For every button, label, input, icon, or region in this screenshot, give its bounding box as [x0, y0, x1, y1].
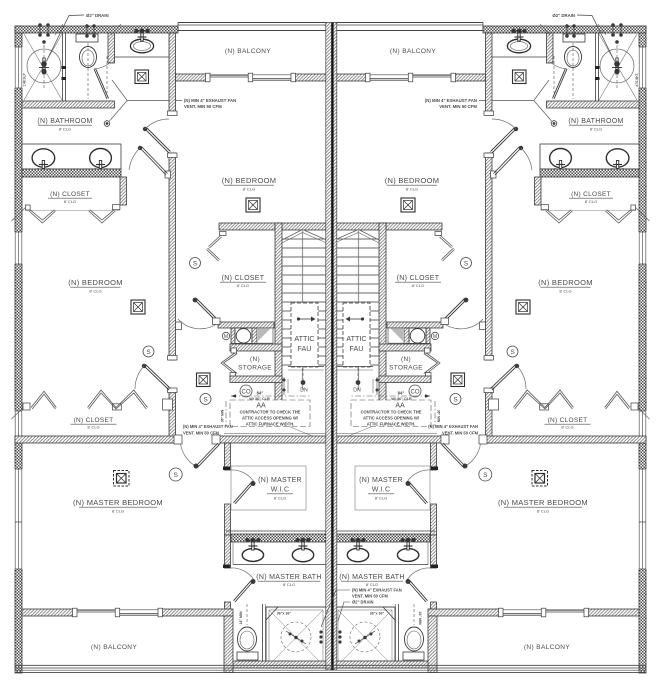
svg-text:36" MIN: 36" MIN [221, 409, 225, 422]
svg-text:(N) BEDROOM: (N) BEDROOM [385, 176, 440, 185]
svg-text:Ø2" DRAIN: Ø2" DRAIN [552, 13, 575, 18]
svg-text:(N): (N) [401, 356, 411, 363]
svg-text:(N) BEDROOM: (N) BEDROOM [222, 176, 277, 185]
svg-text:CO: CO [242, 390, 251, 396]
svg-text:8' CLG: 8' CLG [59, 127, 71, 132]
svg-text:Ø2" DRAIN: Ø2" DRAIN [86, 13, 109, 18]
svg-text:(N) MASTER: (N) MASTER [359, 477, 403, 484]
svg-text:8' CLG: 8' CLG [537, 509, 549, 514]
svg-text:8' CLG: 8' CLG [375, 496, 387, 501]
svg-text:VENT, MIN 50 CFM: VENT, MIN 50 CFM [352, 594, 389, 599]
svg-text:(N) BALCONY: (N) BALCONY [524, 644, 571, 651]
svg-text:(N) BALCONY: (N) BALCONY [390, 48, 437, 55]
svg-text:AA: AA [395, 403, 405, 410]
svg-text:(N) MIN 4" EXHAUST FAN: (N) MIN 4" EXHAUST FAN [352, 588, 402, 593]
svg-text:(N) MIN 4" EXHAUST FAN: (N) MIN 4" EXHAUST FAN [425, 98, 477, 103]
svg-text:Ø2" DRAIN: Ø2" DRAIN [352, 600, 374, 605]
svg-text:S: S [453, 396, 458, 403]
svg-text:DN: DN [300, 388, 308, 394]
svg-text:CONTRACTOR TO CHECK THE: CONTRACTOR TO CHECK THE [361, 410, 422, 415]
svg-text:FAU: FAU [350, 344, 364, 353]
svg-text:STORAGE: STORAGE [238, 365, 272, 372]
svg-text:8' CLG: 8' CLG [89, 289, 101, 294]
svg-text:ATTIC: ATTIC [294, 334, 314, 343]
svg-text:(N) MASTER: (N) MASTER [258, 477, 302, 484]
svg-text:(N) MIN 4" EXHAUST FAN: (N) MIN 4" EXHAUST FAN [183, 424, 233, 429]
svg-text:ATTIC: ATTIC [346, 334, 366, 343]
svg-text:36" MIN: 36" MIN [437, 410, 441, 423]
svg-text:AA: AA [256, 403, 266, 410]
svg-text:(N) CLOSET: (N) CLOSET [548, 417, 588, 424]
svg-text:(N) CLOSET: (N) CLOSET [222, 275, 265, 282]
svg-text:36"x 36": 36"x 36" [370, 612, 385, 616]
svg-text:8' CLG: 8' CLG [559, 289, 571, 294]
svg-text:S: S [193, 260, 198, 267]
svg-text:W.I.C: W.I.C [372, 487, 391, 494]
svg-text:8' CLG: 8' CLG [237, 283, 249, 288]
svg-text:S: S [146, 349, 151, 356]
svg-text:(N) BATHROOM: (N) BATHROOM [568, 118, 623, 125]
svg-text:(N) CLOSET: (N) CLOSET [397, 275, 440, 282]
svg-text:W.I.C: W.I.C [271, 487, 290, 494]
svg-text:S: S [483, 472, 488, 479]
svg-text:(N) MASTER BEDROOM: (N) MASTER BEDROOM [498, 498, 588, 507]
svg-text:84": 84" [398, 391, 405, 396]
svg-text:8' CLG: 8' CLG [366, 582, 378, 587]
svg-text:DN: DN [353, 388, 361, 394]
svg-text:FAU: FAU [298, 344, 312, 353]
svg-text:ATTIC ACCESS OPENING W/: ATTIC ACCESS OPENING W/ [242, 416, 299, 421]
svg-text:8' CLG: 8' CLG [406, 187, 418, 192]
svg-text:(N) CLOSET: (N) CLOSET [571, 191, 611, 198]
svg-text:8' CLG: 8' CLG [590, 127, 602, 132]
svg-text:(N) MIN 4" EXHAUST FAN: (N) MIN 4" EXHAUST FAN [428, 424, 478, 429]
svg-text:8' CLG: 8' CLG [243, 187, 255, 192]
svg-text:CONTRACTOR TO CHECK THE: CONTRACTOR TO CHECK THE [240, 410, 301, 415]
svg-text:(N) BEDROOM: (N) BEDROOM [68, 278, 123, 287]
svg-text:84": 84" [257, 391, 264, 396]
svg-text:ATTIC FURNACE WIDTH.: ATTIC FURNACE WIDTH. [246, 422, 295, 427]
svg-text:8' CLG: 8' CLG [561, 425, 573, 430]
svg-text:(N) CLOSET: (N) CLOSET [74, 417, 114, 424]
svg-text:M: M [433, 334, 437, 340]
svg-text:14" MIN: 14" MIN [239, 611, 243, 625]
svg-text:8' CLG: 8' CLG [64, 199, 76, 204]
svg-text:(N) BEDROOM: (N) BEDROOM [538, 278, 593, 287]
svg-text:ATTIC ACCESS OPENING W/: ATTIC ACCESS OPENING W/ [363, 416, 420, 421]
svg-text:VENT. MIN 50 CFM: VENT. MIN 50 CFM [439, 104, 477, 109]
svg-text:ATTIC FURNACE WIDTH.: ATTIC FURNACE WIDTH. [367, 422, 416, 427]
svg-text:8' CLG: 8' CLG [87, 425, 99, 430]
svg-text:8' CLG: 8' CLG [112, 509, 124, 514]
svg-text:S: S [510, 349, 515, 356]
svg-text:(N) BALCONY: (N) BALCONY [225, 48, 272, 55]
svg-text:14" MIN: 14" MIN [418, 611, 422, 625]
svg-text:CO: CO [411, 390, 420, 396]
svg-text:VENT. MIN 50 CFM: VENT. MIN 50 CFM [184, 104, 222, 109]
svg-text:8' CLG: 8' CLG [283, 582, 295, 587]
svg-text:(N) MASTER BEDROOM: (N) MASTER BEDROOM [73, 498, 163, 507]
svg-text:8' CLG: 8' CLG [274, 496, 286, 501]
svg-text:(N): (N) [250, 356, 260, 363]
svg-text:1:48 SLP: 1:48 SLP [23, 72, 27, 86]
svg-text:S: S [174, 472, 179, 479]
svg-text:(N) CLOSET: (N) CLOSET [50, 191, 90, 198]
svg-text:1:48 SLP: 1:48 SLP [635, 73, 639, 87]
svg-text:STORAGE: STORAGE [389, 365, 423, 372]
svg-text:8' CLG: 8' CLG [412, 283, 424, 288]
svg-text:S: S [203, 396, 208, 403]
svg-text:(N) BATHROOM: (N) BATHROOM [37, 118, 92, 125]
svg-text:8' CLG: 8' CLG [585, 199, 597, 204]
svg-text:S: S [464, 260, 469, 267]
svg-text:(N) BALCONY: (N) BALCONY [91, 644, 138, 651]
svg-text:(N) MASTER BATH: (N) MASTER BATH [256, 574, 321, 581]
svg-text:36"x 36": 36"x 36" [277, 612, 292, 616]
svg-text:(N) MASTER BATH: (N) MASTER BATH [339, 574, 404, 581]
svg-text:M: M [224, 334, 228, 340]
svg-text:(N) MIN 4" EXHAUST FAN: (N) MIN 4" EXHAUST FAN [184, 98, 236, 103]
